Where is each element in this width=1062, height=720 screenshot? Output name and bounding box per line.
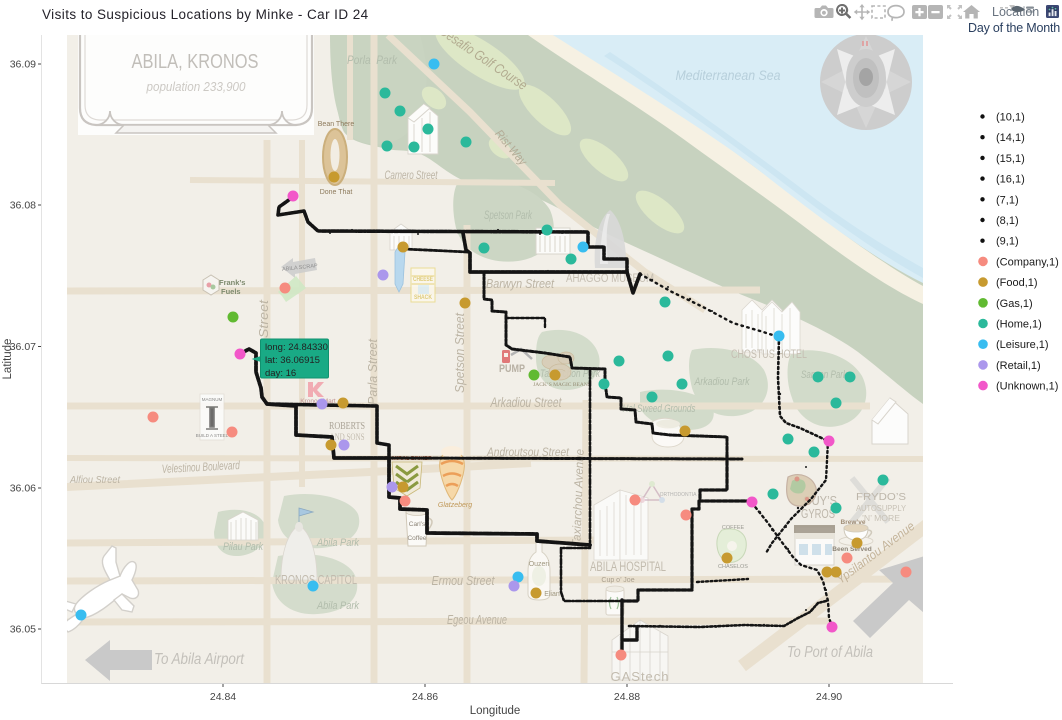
svg-text:population 233,900: population 233,900: [146, 79, 247, 94]
svg-text:Latitude: Latitude: [2, 339, 14, 380]
svg-text:ABILA, KRONOS: ABILA, KRONOS: [132, 51, 259, 73]
svg-text:(Unknown,1): (Unknown,1): [996, 381, 1058, 393]
svg-text:24.88: 24.88: [614, 691, 640, 703]
svg-text:lat: 36.06915: lat: 36.06915: [265, 355, 320, 366]
svg-text:Brew’ve: Brew’ve: [841, 519, 866, 526]
svg-text:ORTHODONTIA: ORTHODONTIA: [660, 492, 698, 498]
svg-text:Egeou Avenue: Egeou Avenue: [447, 613, 507, 627]
svg-text:COFFEE: COFFEE: [722, 525, 745, 531]
svg-text:Cup o’ Joe: Cup o’ Joe: [601, 577, 634, 584]
svg-text:36.06: 36.06: [10, 483, 36, 495]
svg-text:(8,1): (8,1): [996, 215, 1019, 227]
svg-text:(Food,1): (Food,1): [996, 277, 1038, 289]
svg-text:day: 16: day: 16: [265, 368, 296, 379]
svg-text:Been Served: Been Served: [832, 546, 871, 553]
svg-text:long: 24.84330: long: 24.84330: [265, 342, 328, 353]
svg-text:ABILA HOSPITAL: ABILA HOSPITAL: [590, 559, 666, 574]
svg-text:Glatzeberg: Glatzeberg: [438, 502, 472, 509]
svg-text:24.90: 24.90: [816, 691, 842, 703]
svg-text:Porla Park: Porla Park: [347, 55, 398, 67]
svg-text:Spetson Park: Spetson Park: [484, 210, 533, 222]
svg-text:(Company,1): (Company,1): [996, 256, 1059, 268]
svg-text:Bean There: Bean There: [318, 121, 355, 128]
svg-text:(15,1): (15,1): [996, 153, 1025, 165]
svg-text:Carl’s: Carl’s: [409, 521, 426, 528]
svg-text:(14,1): (14,1): [996, 132, 1025, 144]
svg-text:ROBERTS: ROBERTS: [329, 421, 365, 432]
svg-text:GAStech: GAStech: [610, 669, 669, 684]
svg-text:Parla Street: Parla Street: [365, 338, 380, 405]
svg-text:Elian: Elian: [544, 591, 560, 598]
svg-text:Sansan Park: Sansan Park: [801, 369, 847, 381]
svg-text:Mediterranean Sea: Mediterranean Sea: [676, 67, 781, 83]
svg-text:AUTOSUPPLY: AUTOSUPPLY: [856, 504, 907, 513]
svg-text:(7,1): (7,1): [996, 194, 1019, 206]
svg-text:Done That: Done That: [320, 189, 353, 196]
svg-text:(Home,1): (Home,1): [996, 319, 1042, 331]
svg-text:CHEESE: CHEESE: [413, 276, 433, 283]
svg-text:(Leisure,1): (Leisure,1): [996, 339, 1049, 351]
svg-text:Longitude: Longitude: [470, 705, 521, 717]
svg-text:Coffee: Coffee: [407, 535, 426, 542]
svg-text:Frank’s: Frank’s: [219, 278, 245, 287]
svg-text:36.05: 36.05: [10, 624, 36, 636]
svg-text:JACK’S MAGIC BEANS: JACK’S MAGIC BEANS: [533, 382, 591, 388]
svg-text:24.86: 24.86: [412, 691, 438, 703]
svg-text:(Gas,1): (Gas,1): [996, 298, 1033, 310]
svg-text:CHASELOS: CHASELOS: [718, 564, 748, 570]
svg-text:BUILD A STEEL: BUILD A STEEL: [196, 433, 229, 438]
svg-text:PUMP: PUMP: [499, 363, 525, 375]
svg-text:MAGNUM: MAGNUM: [202, 397, 223, 402]
svg-text:Pilau Park: Pilau Park: [223, 541, 263, 553]
svg-text:Spetson Street: Spetson Street: [452, 312, 467, 393]
svg-text:Abila Park: Abila Park: [316, 600, 359, 612]
svg-text:Arkadiou Park: Arkadiou Park: [694, 376, 750, 388]
svg-text:GYROS: GYROS: [801, 507, 835, 521]
svg-text:To Port of Abila: To Port of Abila: [787, 644, 873, 661]
svg-text:Ouzeri: Ouzeri: [529, 561, 550, 568]
svg-text:(16,1): (16,1): [996, 174, 1025, 186]
svg-text:36.09: 36.09: [10, 59, 36, 71]
svg-text:FRYDO’S: FRYDO’S: [856, 491, 906, 503]
svg-text:SHACK: SHACK: [414, 294, 432, 301]
svg-text:’N’ MORE: ’N’ MORE: [862, 513, 900, 523]
svg-text:36.08: 36.08: [10, 200, 36, 212]
svg-text:(10,1): (10,1): [996, 112, 1025, 124]
svg-text:Ermou Street: Ermou Street: [432, 574, 495, 588]
svg-text:24.84: 24.84: [210, 691, 236, 703]
svg-text:Carnero Street: Carnero Street: [385, 170, 439, 182]
svg-text:(9,1): (9,1): [996, 236, 1019, 248]
svg-text:Fuels: Fuels: [221, 287, 241, 296]
svg-text:Abila Park: Abila Park: [316, 537, 359, 549]
svg-text:Arkadiou Street: Arkadiou Street: [490, 395, 563, 410]
svg-text:Alfiou Street: Alfiou Street: [69, 474, 121, 486]
svg-text:(Retail,1): (Retail,1): [996, 360, 1041, 372]
svg-text:To Abila Airport: To Abila Airport: [154, 651, 244, 668]
svg-text:Barwyn Street: Barwyn Street: [486, 276, 555, 291]
svg-text:CHOSTUS HOTEL: CHOSTUS HOTEL: [731, 349, 807, 361]
